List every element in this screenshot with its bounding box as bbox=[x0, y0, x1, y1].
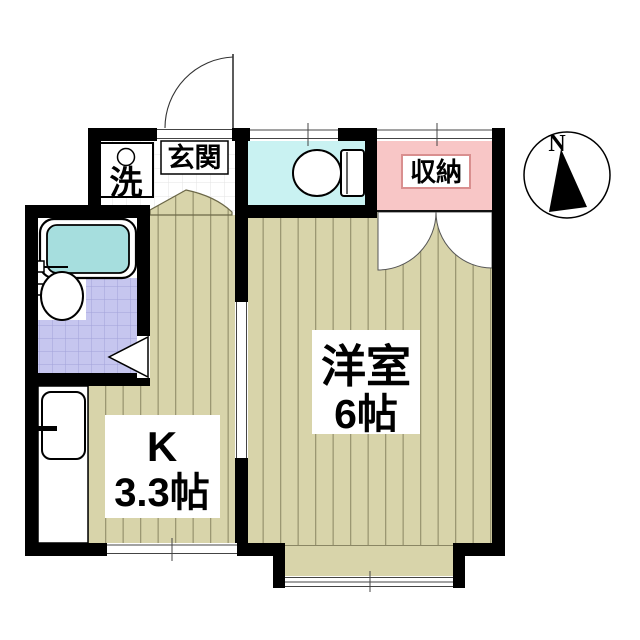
laundry-label: 洗 bbox=[110, 164, 143, 201]
wall-partition-lower bbox=[235, 458, 248, 556]
compass-label: N bbox=[548, 131, 566, 157]
wall-toilet-bottom bbox=[235, 205, 377, 218]
wall-bath-bottom bbox=[25, 373, 150, 386]
wall-toilet-storage bbox=[365, 128, 377, 211]
toilet-bowl bbox=[293, 150, 341, 196]
bathroom bbox=[32, 218, 137, 373]
bay-window-step bbox=[285, 545, 453, 578]
floor-plan-drawing: 洗 玄関 収納 K 3.3帖 洋室 6帖 N bbox=[0, 0, 640, 640]
washing-machine-icon bbox=[118, 149, 135, 166]
kitchen-label-line2: 3.3帖 bbox=[114, 471, 210, 515]
toilet-fixture bbox=[293, 150, 364, 196]
kitchen-faucet bbox=[30, 426, 57, 431]
wall-partition-upper bbox=[235, 141, 248, 302]
storage-opening-line bbox=[377, 210, 492, 212]
genkan-label: 玄関 bbox=[168, 142, 222, 173]
wall-bath-top bbox=[25, 205, 150, 218]
kitchen-sink bbox=[42, 392, 85, 459]
wall-bottom-right bbox=[465, 543, 505, 556]
floor-plan-page: 洗 玄関 収納 K 3.3帖 洋室 6帖 N bbox=[0, 0, 640, 640]
wall-kitchen-bottom bbox=[25, 543, 107, 556]
bath-sink-basin bbox=[41, 272, 83, 320]
wall-bay-left bbox=[273, 543, 285, 588]
western-room-label-line2: 6帖 bbox=[334, 391, 398, 437]
compass: N bbox=[524, 131, 610, 218]
kitchen-label-line1: K bbox=[147, 423, 177, 470]
wall-right bbox=[492, 128, 505, 556]
bathtub-inner bbox=[47, 225, 129, 273]
toilet-tank bbox=[341, 150, 364, 196]
wall-bay-right bbox=[453, 543, 465, 588]
western-room-label-line1: 洋室 bbox=[321, 341, 411, 392]
kitchen-counter bbox=[30, 386, 88, 543]
storage-label: 収納 bbox=[410, 157, 462, 187]
wall-top-mid bbox=[232, 128, 250, 141]
